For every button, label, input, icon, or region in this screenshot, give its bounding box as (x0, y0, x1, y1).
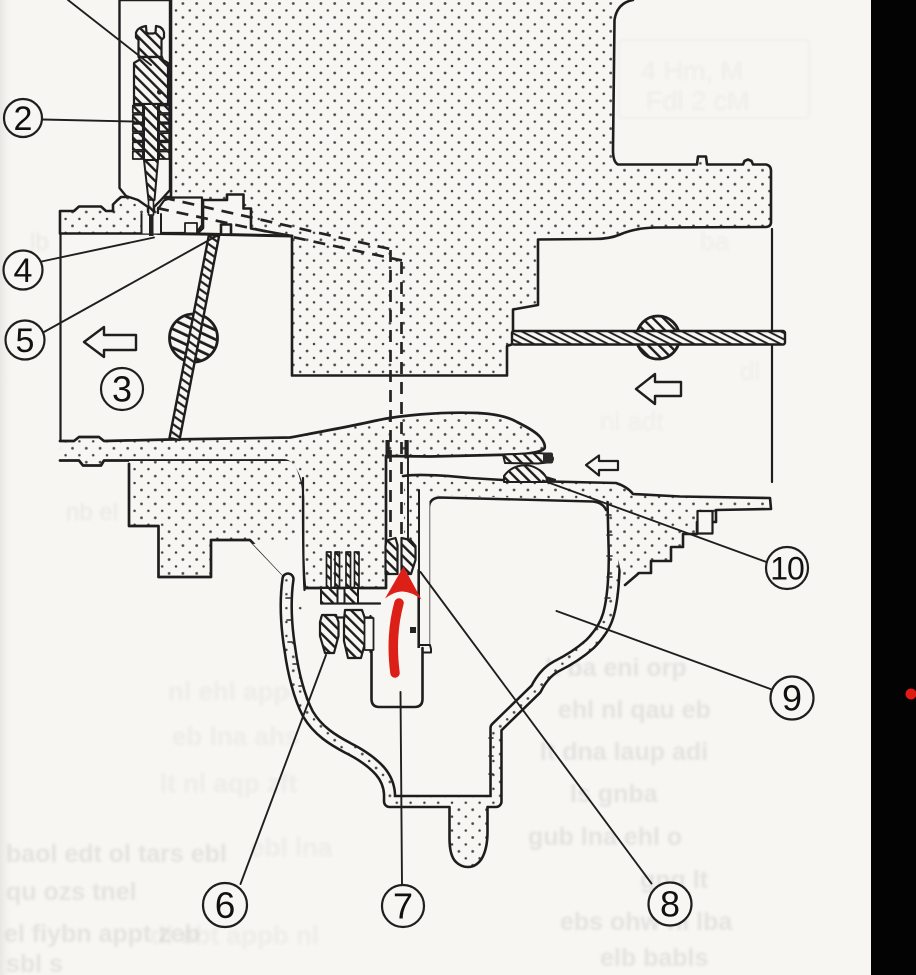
svg-text:5: 5 (16, 322, 35, 360)
svg-text:nl ehl appq: nl ehl appq (168, 676, 305, 706)
svg-text:4: 4 (14, 252, 33, 290)
svg-text:gub lna ehl o: gub lna ehl o (528, 823, 682, 851)
svg-text:7: 7 (393, 886, 413, 927)
svg-text:lt nl aqp zft: lt nl aqp zft (160, 768, 298, 798)
svg-text:baol edt ol tars ebl: baol edt ol tars ebl (6, 840, 227, 868)
svg-text:nl adt: nl adt (600, 406, 664, 436)
svg-text:6: 6 (215, 885, 236, 926)
svg-text:ebs ohw nl lba: ebs ohw nl lba (560, 908, 733, 936)
svg-text:8: 8 (660, 884, 680, 925)
svg-text:eb lna ahs: eb lna ahs (172, 721, 299, 751)
svg-text:sbl s: sbl s (6, 950, 63, 975)
svg-text:qu ozs tnel: qu ozs tnel (6, 878, 137, 906)
svg-text:dl: dl (740, 356, 760, 386)
svg-text:ls gnba: ls gnba (570, 780, 659, 808)
svg-text:nb el: nb el (66, 499, 118, 526)
svg-text:3: 3 (112, 369, 132, 410)
svg-text:ebl lna: ebl lna (250, 832, 333, 862)
svg-text:ba: ba (700, 226, 729, 256)
svg-text:9: 9 (782, 678, 802, 719)
svg-text:4 Hm, M: 4 Hm, M (641, 56, 743, 86)
svg-text:elb babls: elb babls (600, 944, 708, 972)
svg-text:Fdl 2 cM: Fdl 2 cM (646, 86, 750, 116)
svg-text:ehl nl qau eb: ehl nl qau eb (558, 696, 711, 724)
svg-text:2: 2 (14, 100, 33, 138)
svg-text:lt dna laup adi: lt dna laup adi (540, 738, 708, 766)
svg-text:10: 10 (770, 551, 804, 587)
